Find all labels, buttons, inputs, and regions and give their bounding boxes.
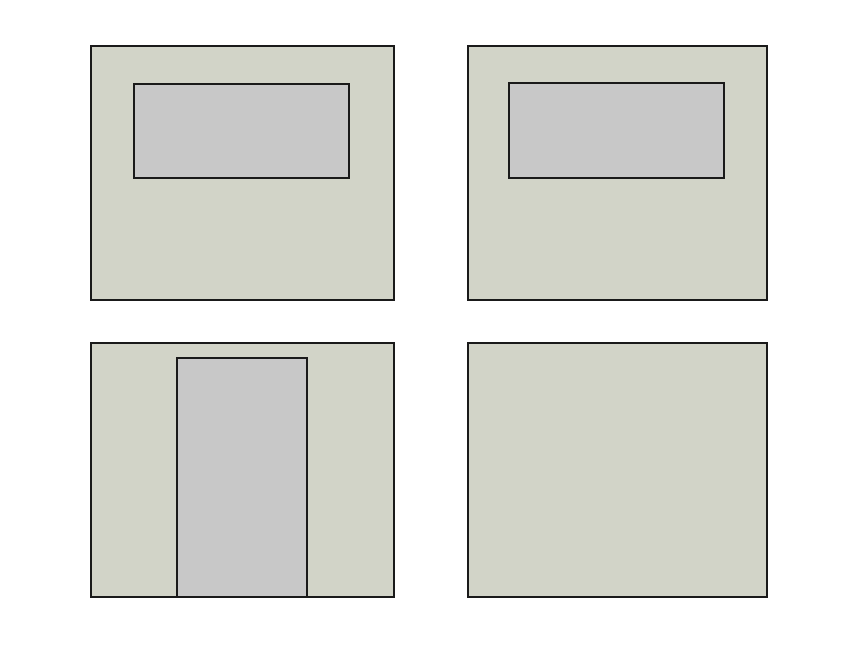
wall-panel-top-left-window (90, 45, 395, 301)
window-opening-left (133, 83, 350, 179)
wall-panel-top-right-window (467, 45, 768, 301)
window-opening-right (508, 82, 725, 179)
wall-panel-bottom-right-plain (467, 342, 768, 598)
diagram-canvas (0, 0, 860, 645)
door-opening (176, 357, 308, 598)
wall-panel-bottom-left-door (90, 342, 395, 598)
